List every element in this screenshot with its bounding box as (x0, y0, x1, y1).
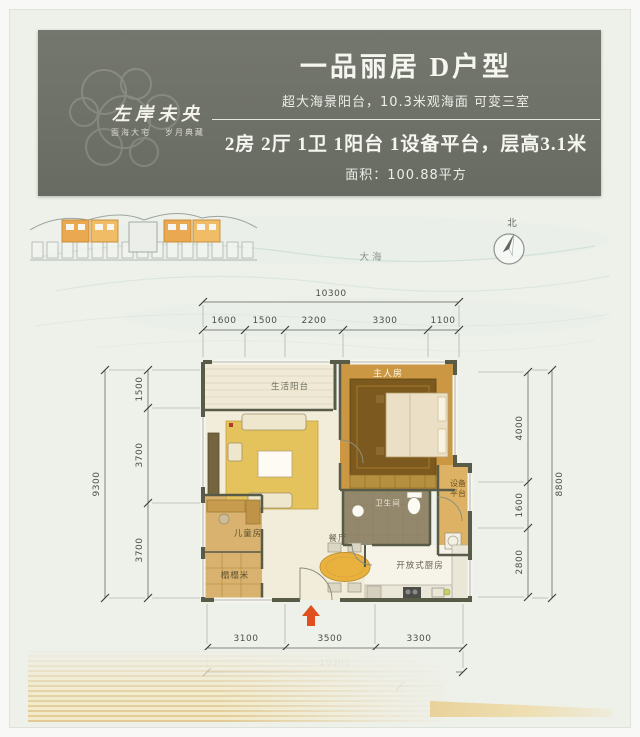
dim-right-seg: 2800 (515, 550, 525, 575)
dim-bottom-seg: 3300 (407, 634, 432, 644)
dim-top-seg: 1100 (431, 316, 456, 326)
room-label-open-kitchen: 开放式厨房 (396, 559, 444, 571)
dim-top-seg: 1500 (253, 316, 278, 326)
room-label-children-room: 儿童房 (234, 527, 263, 539)
room-label-tatami: 榻榻米 (221, 569, 250, 581)
floorplan: 生活阳台 主人房 设备平台 卫生间 儿童房 榻榻米 餐厅 开放式厨房 (200, 355, 475, 628)
entry-arrow-icon (302, 605, 320, 626)
dim-left-seg: 3700 (135, 538, 145, 563)
dim-bottom-seg: 3100 (234, 634, 259, 644)
dim-top-seg: 2200 (302, 316, 327, 326)
dim-top-seg: 1600 (212, 316, 237, 326)
room-label-dining-room: 餐厅 (328, 532, 347, 544)
dim-right-seg: 1600 (515, 493, 525, 518)
room-label-master-bedroom: 主人房 (373, 367, 403, 380)
dim-left-seg: 3700 (135, 443, 145, 468)
floorplan-poster: 左岸未央 面海大宅岁月典藏 一品丽居 D户型 超大海景阳台，10.3米观海面 可… (0, 0, 640, 737)
dim-left-total: 9300 (92, 472, 102, 497)
dim-bottom-seg: 3500 (318, 634, 343, 644)
floorplan-drawing (200, 355, 475, 628)
dim-top-total: 10300 (315, 289, 346, 299)
dim-right-total: 8800 (555, 472, 565, 497)
room-label-bathroom: 卫生间 (375, 498, 401, 509)
dim-left-seg: 1500 (135, 377, 145, 402)
room-label-living-balcony: 生活阳台 (271, 380, 309, 392)
room-label-equipment-platform: 设备平台 (448, 479, 468, 499)
dim-right-seg: 4000 (515, 416, 525, 441)
dim-top-seg: 3300 (373, 316, 398, 326)
gold-texture-strip (28, 650, 456, 722)
